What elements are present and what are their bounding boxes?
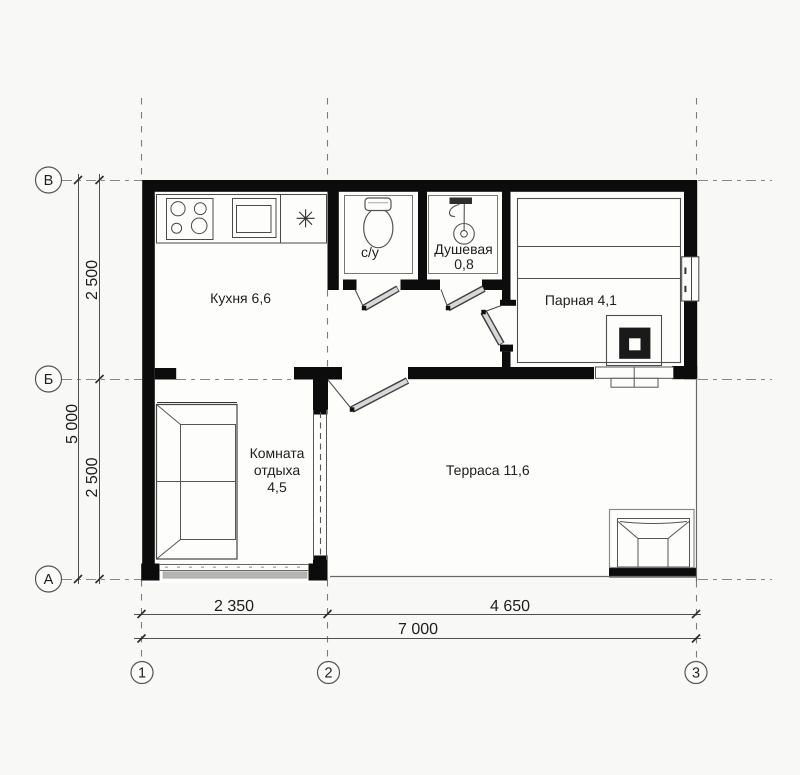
svg-text:Комната: Комната [250, 445, 305, 461]
svg-text:А: А [44, 572, 54, 588]
svg-text:7 000: 7 000 [398, 621, 438, 638]
svg-text:5 000: 5 000 [64, 404, 81, 444]
svg-text:2 350: 2 350 [214, 598, 254, 615]
svg-text:1: 1 [138, 666, 146, 682]
svg-text:2: 2 [324, 666, 332, 682]
svg-text:В: В [44, 173, 54, 189]
svg-text:2 500: 2 500 [84, 260, 101, 300]
svg-text:Б: Б [44, 372, 54, 388]
svg-text:2 500: 2 500 [84, 457, 101, 497]
svg-text:Кухня 6,6: Кухня 6,6 [210, 290, 271, 306]
svg-text:Душевая: Душевая [434, 241, 492, 257]
svg-text:3: 3 [692, 666, 700, 682]
svg-text:4 650: 4 650 [490, 598, 530, 615]
svg-text:с/у: с/у [361, 244, 379, 260]
svg-text:отдыха: отдыха [254, 462, 301, 478]
svg-text:Терраса 11,6: Терраса 11,6 [446, 462, 530, 478]
svg-text:4,5: 4,5 [267, 479, 287, 495]
svg-text:0,8: 0,8 [454, 256, 474, 272]
svg-text:Парная 4,1: Парная 4,1 [545, 292, 617, 308]
